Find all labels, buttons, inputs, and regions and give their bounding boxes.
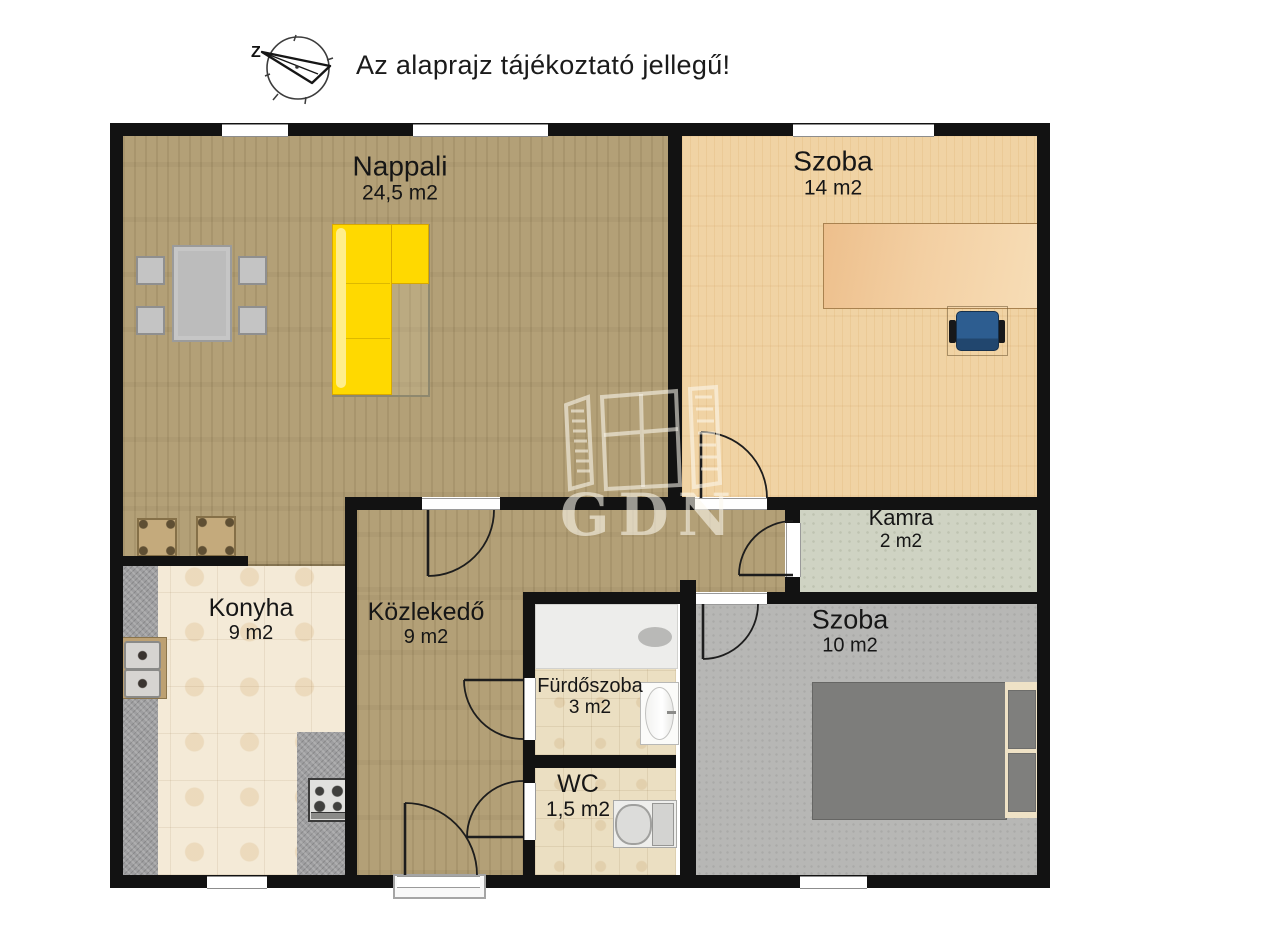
office-chair (956, 311, 999, 351)
door-opening-szoba10 (696, 593, 767, 605)
wall-hall-top (345, 497, 422, 510)
washbasin-tap (667, 711, 676, 714)
bed-mattress (812, 682, 1007, 820)
label-wc: WC 1,5 m2 (546, 770, 610, 822)
dining-chair (238, 256, 267, 285)
wall-hall-left (345, 510, 357, 875)
label-konyha: Konyha 9 m2 (209, 594, 294, 644)
disclaimer-note: Az alaprajz tájékoztató jellegű! (356, 50, 730, 81)
dining-chair (136, 306, 165, 335)
dining-chair (238, 306, 267, 335)
door-opening-szoba14 (695, 498, 767, 510)
label-szoba10: Szoba 10 m2 (812, 605, 889, 658)
desk (823, 223, 1039, 309)
compass-icon: Z (250, 24, 340, 112)
floor-plan: Nappali 24,5 m2 Szoba 14 m2 Kamra 2 m2 K… (110, 123, 1050, 888)
wall-konyha-top (110, 556, 248, 566)
wall-szoba10-top (767, 592, 1037, 604)
label-kozlekedo: Közlekedő 9 m2 (368, 598, 485, 648)
window (207, 876, 267, 889)
window (413, 124, 548, 137)
kitchen-counter-left (123, 565, 158, 875)
label-furdoszoba: Fürdőszoba 3 m2 (537, 675, 643, 719)
office-chair-armrest (998, 320, 1005, 343)
wall-szoba10-top (523, 592, 680, 604)
door-opening-wc (524, 783, 536, 840)
bed-pillow (1008, 753, 1036, 812)
entry-door-opening (397, 876, 480, 888)
wall-kamra-left (785, 510, 800, 523)
wall-nappali-szoba (668, 136, 682, 497)
floor-plan-page: Z Az alaprajz tájékoztató jellegű! (0, 0, 1280, 952)
toilet-cistern (652, 803, 674, 846)
wall-hall-top (500, 497, 695, 510)
wall-bath-right (680, 580, 696, 875)
office-chair-armrest (949, 320, 956, 343)
wall-outer-left (110, 123, 123, 888)
toilet-bowl (615, 804, 652, 845)
door-opening-kamra (786, 523, 801, 577)
label-kamra: Kamra 2 m2 (869, 506, 934, 552)
dining-chair (136, 256, 165, 285)
dining-table (172, 245, 232, 342)
wall-kamra-left (785, 577, 800, 592)
stool (137, 518, 177, 557)
room-kozlekedo-branch-floor (357, 510, 785, 592)
window (793, 124, 934, 137)
kitchen-open-passage (248, 564, 345, 566)
compass-north-label: Z (251, 44, 261, 61)
sink-basin (124, 641, 161, 670)
wall-outer-right (1037, 123, 1050, 888)
bed-pillow (1008, 690, 1036, 749)
bathroom-counter-sink (638, 627, 672, 647)
wall-bath-wc (535, 755, 676, 768)
window (222, 124, 288, 137)
stool (196, 516, 236, 557)
label-nappali: Nappali 24,5 m2 (353, 151, 448, 206)
window (800, 876, 867, 889)
door-opening-nappali (422, 498, 500, 510)
sofa-seam (346, 338, 390, 339)
door-opening-furdoszoba (524, 678, 536, 740)
sofa-armrest (336, 228, 346, 388)
sofa-seam (346, 283, 390, 284)
sink-basin (124, 669, 161, 698)
label-szoba14: Szoba 14 m2 (793, 146, 872, 201)
gas-stove (308, 778, 349, 822)
